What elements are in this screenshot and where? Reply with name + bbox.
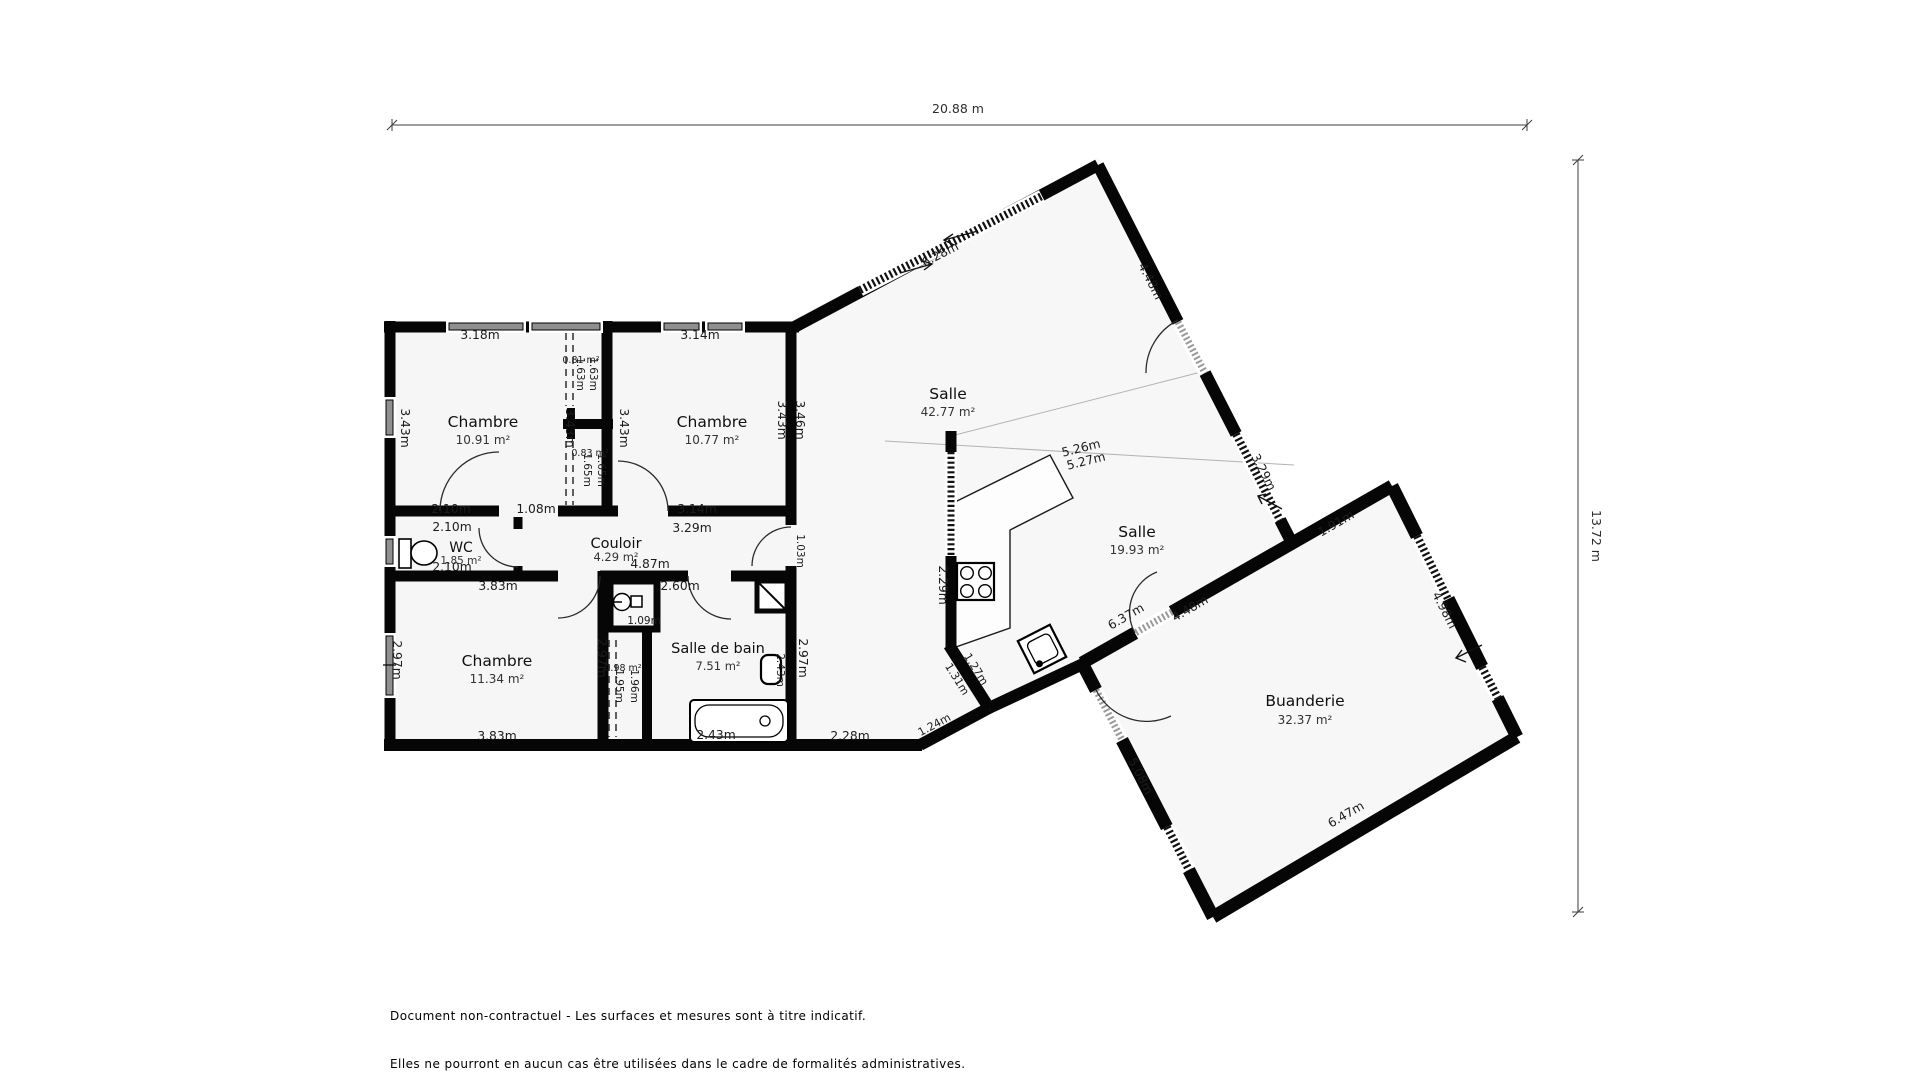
measurement-label: 2.60m <box>660 579 699 593</box>
room-area-label: 7.51 m² <box>695 659 740 673</box>
fixture-icon <box>631 596 642 607</box>
disclaimer-line-2: Elles ne pourront en aucun cas être util… <box>390 1056 966 1072</box>
measurement-label: 1.03m <box>794 534 806 568</box>
room-name-label: Chambre <box>448 413 519 431</box>
floor-plan-drawing: 20.88 m 13.72 m 3.18m3.14m3.43m3.43m1.63… <box>0 0 1920 1080</box>
measurement-label: 0.81 m² <box>562 355 599 366</box>
room-name-label: Chambre <box>462 652 533 670</box>
measurement-label: 3.14m <box>680 328 719 342</box>
room-name-label: Salle <box>929 385 967 403</box>
window <box>529 320 603 333</box>
room-name-label: Salle de bain <box>671 641 765 657</box>
measurement-label: 0.83 m² <box>571 448 608 459</box>
measurement-label: 3.46m <box>793 400 807 439</box>
room-area-label: 1.85 m² <box>440 555 481 567</box>
measurement-label: 3.29m <box>672 521 711 535</box>
measurement-label: 3.43m <box>398 408 412 447</box>
room-area-label: 19.93 m² <box>1110 543 1165 557</box>
measurement-label: 2.28m <box>830 729 869 743</box>
room-area-label: 10.77 m² <box>685 433 740 447</box>
floor-plan-page: 20.88 m 13.72 m 3.18m3.14m3.43m3.43m1.63… <box>0 0 1920 1080</box>
shaft-icon <box>757 581 787 611</box>
toilet-icon <box>399 539 437 568</box>
width-dimension-label: 20.88 m <box>932 101 984 116</box>
measurement-label: 3.43m <box>775 400 789 439</box>
measurement-label: 1.96m <box>628 669 640 703</box>
measurement-label: 1.09m <box>627 615 661 627</box>
height-dimension-label: 13.72 m <box>1589 510 1604 562</box>
room-name-label: Salle <box>1118 523 1156 541</box>
measurement-label: 2.10m <box>431 502 470 516</box>
room-area-label: 11.34 m² <box>470 672 525 686</box>
disclaimer: Document non-contractuel - Les surfaces … <box>390 976 966 1080</box>
room-name-label: Chambre <box>677 413 748 431</box>
measurement-label: 3.14m <box>677 502 716 516</box>
window <box>383 536 396 567</box>
room-area-label: 10.91 m² <box>456 433 511 447</box>
disclaimer-line-1: Document non-contractuel - Les surfaces … <box>390 1008 966 1024</box>
measurement-label: 2.43m <box>696 728 735 742</box>
measurement-label: 0.98 m² <box>604 663 641 674</box>
room-name-label: WC <box>449 540 473 556</box>
measurement-label: 3.83m <box>478 579 517 593</box>
measurement-label: 3.18m <box>460 328 499 342</box>
measurement-label: 2.43m <box>774 653 786 687</box>
room-area-label: 4.29 m² <box>593 550 638 564</box>
measurement-label: 1.95m <box>613 669 625 703</box>
window <box>383 397 396 438</box>
measurement-label: 3.83m <box>477 729 516 743</box>
measurement-label: 2.97m <box>390 640 404 679</box>
measurement-label: 3.43m <box>563 408 577 447</box>
measurement-label: 1.08m <box>516 502 555 516</box>
room-name-label: Buanderie <box>1265 692 1344 710</box>
measurement-label: 2.97m <box>796 638 810 677</box>
cooktop-icon <box>957 563 994 600</box>
measurement-label: 2.29m <box>936 565 950 604</box>
room-area-label: 42.77 m² <box>921 405 976 419</box>
measurement-label: 3.43m <box>617 408 631 447</box>
room-area-label: 32.37 m² <box>1278 713 1333 727</box>
measurement-label: 2.10m <box>432 520 471 534</box>
